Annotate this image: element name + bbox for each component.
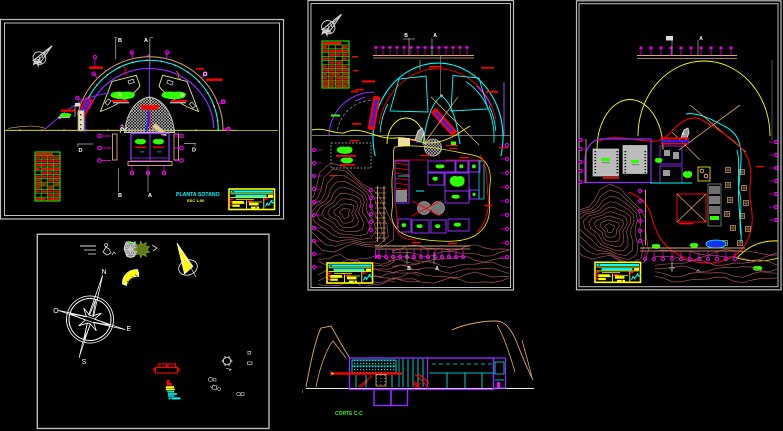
svg-text:xxx: xxx [157,150,162,154]
svg-text:Y: Y [670,268,673,273]
svg-text:B: B [118,193,122,199]
svg-text:B: B [404,33,408,39]
svg-text:B: B [118,38,122,44]
svg-text:A: A [435,266,439,272]
svg-text:B: B [407,266,411,272]
svg-text:S: S [82,359,87,366]
svg-text:ESC 1:50: ESC 1:50 [187,198,205,203]
svg-text:A: A [148,193,152,199]
svg-text:D: D [192,148,196,154]
svg-text:A: A [144,38,148,44]
svg-text:A: A [696,268,699,273]
svg-text:N: N [101,269,106,276]
svg-text:A: A [433,33,437,39]
svg-text:xxx: xxx [140,150,145,154]
svg-text:E: E [127,326,132,333]
svg-text:CORTE C-C: CORTE C-C [335,411,363,417]
svg-text:D: D [79,148,83,154]
svg-text:A: A [699,36,703,42]
svg-text:O: O [53,308,59,315]
